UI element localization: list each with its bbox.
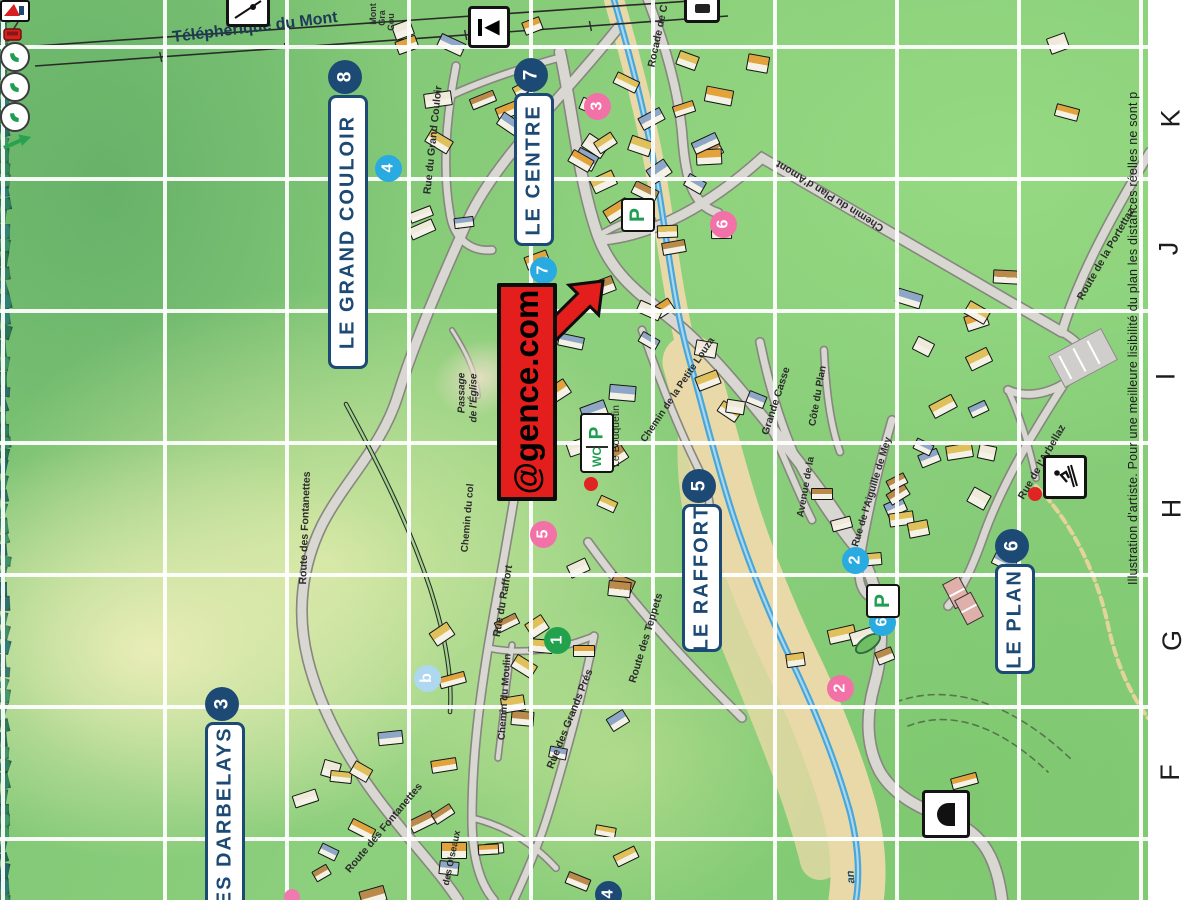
grid-letter-margin: KJIHGF (1148, 0, 1200, 900)
agency-promo-text: @gence.com (508, 290, 546, 495)
terrain-background (0, 0, 1200, 900)
agency-promo-banner: @gence.com (497, 283, 557, 501)
map-canvas[interactable]: Téléphérique du MontMontGraCouRue du Gra… (0, 0, 1200, 900)
grid-letter: I (1150, 373, 1181, 381)
grid-letter: G (1157, 630, 1188, 651)
map-disclaimer: Illustration d'artiste. Pour une meilleu… (1126, 92, 1140, 585)
grid-letter: K (1156, 109, 1187, 127)
grid-letter: H (1156, 499, 1187, 519)
grid-letter: J (1153, 242, 1184, 256)
grid-letter: F (1155, 764, 1186, 781)
